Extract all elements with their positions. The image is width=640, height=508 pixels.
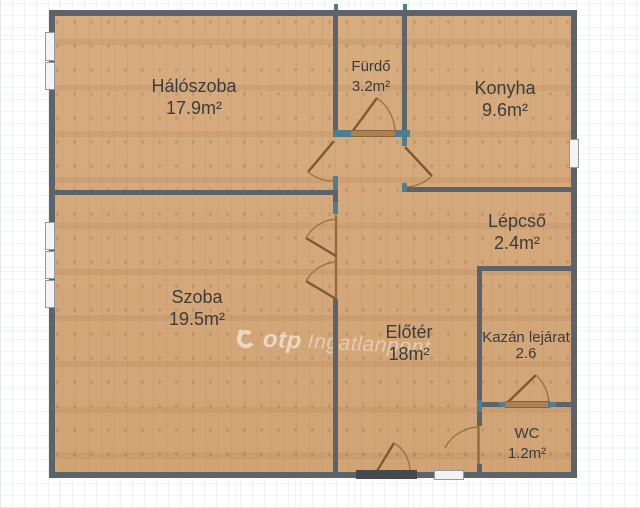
window-konyha [569,139,579,168]
jamb-topwall-right-tick [403,4,407,10]
jamb-kazan-door-right [548,402,556,407]
window-eloter-bottom [434,470,464,480]
door-furdo-sill [351,130,396,137]
room-label-wc: WC 1.2m² [508,424,546,464]
window-szoba-3 [45,280,55,308]
jamb-furdo-door-left [333,130,352,137]
room-label-lepcso: Lépcső 2.4m² [488,210,546,254]
jamb-haloszoba-door-bottom [333,176,338,190]
jamb-topwall-left-tick [334,4,338,10]
room-name: Szoba [169,286,225,308]
window-szoba-1 [45,222,55,250]
room-area: 2.4m² [488,232,546,254]
room-area: 9.6m² [474,99,535,121]
room-area: 18m² [385,343,432,365]
room-label-eloter: Előtér 18m² [385,321,432,365]
wall-eloter-wc-lower [477,464,482,472]
room-name: Hálószoba [151,75,236,97]
room-name: Fürdő [351,57,390,77]
room-name: WC [508,424,546,444]
wall-haloszoba-szoba [55,190,338,195]
room-area: 17.9m² [151,97,236,119]
wall-szoba-eloter-lower [333,299,338,472]
room-name: Konyha [474,77,535,99]
wall-eloter-wc-upper [477,412,482,426]
wall-furdo-konyha [402,16,407,132]
room-area: 1.2m² [508,444,546,464]
jamb-furdo-door-right [395,130,410,137]
room-name: Előtér [385,321,432,343]
wall-konyha-lepcso [402,187,571,192]
room-area: 2.6 [482,346,570,362]
room-area: 3.2m² [351,77,390,97]
wall-haloszoba-furdo [333,16,338,132]
window-haloszoba-2 [45,62,55,90]
wall-lepcso-kazan [477,266,571,271]
window-szoba-2 [45,251,55,279]
room-label-furdo: Fürdő 3.2m² [351,57,390,97]
room-label-konyha: Konyha 9.6m² [474,77,535,121]
floor-plan-page: { "watermark": { "brand": "otp", "suffix… [0,0,640,508]
jamb-szoba-door-top [333,202,338,214]
door-kazan-sill [505,401,550,408]
jamb-wc-corner [477,400,482,412]
entry-door-threshold [356,470,417,479]
room-label-kazan-lejarat: Kazán lejárat 2.6 [482,330,570,362]
room-name: Lépcső [488,210,546,232]
wall-kazan-wc-right [554,402,571,407]
jamb-konyha-door-bottom [402,183,407,192]
room-label-haloszoba: Hálószoba 17.9m² [151,75,236,119]
room-label-szoba: Szoba 19.5m² [169,286,225,330]
room-area: 19.5m² [169,308,225,330]
room-name: Kazán lejárat [482,330,570,346]
window-haloszoba-1 [45,32,55,61]
